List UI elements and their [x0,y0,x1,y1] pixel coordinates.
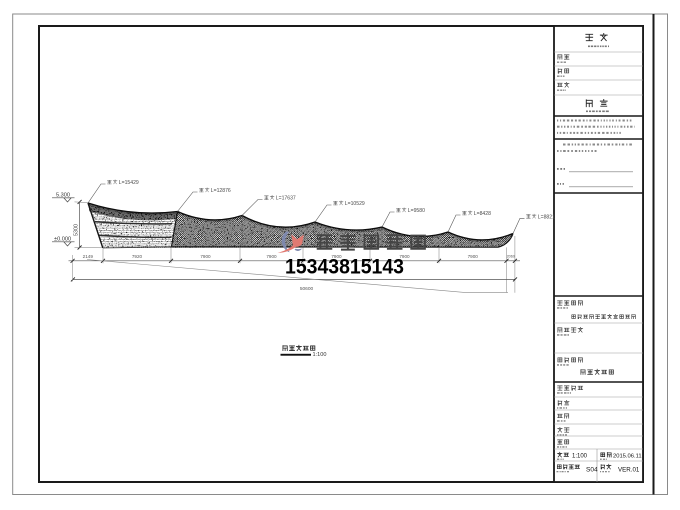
svg-text:7920: 7920 [132,254,143,259]
svg-text:7900: 7900 [266,254,277,259]
svg-text:15343815143: 15343815143 [285,255,404,279]
svg-text:L=8821: L=8821 [538,215,555,221]
svg-text:VER.01: VER.01 [618,467,640,474]
svg-text:5300: 5300 [74,224,80,236]
svg-text:L=17637: L=17637 [276,196,296,202]
svg-text:2149: 2149 [83,254,94,259]
svg-text:7900: 7900 [200,254,211,259]
svg-text:1:100: 1:100 [313,352,327,358]
svg-text:L=8428: L=8428 [474,211,491,217]
svg-text:2015.06.11: 2015.06.11 [613,454,642,460]
svg-text:7900: 7900 [468,254,479,259]
svg-text:L=15429: L=15429 [119,180,139,186]
svg-text:1:100: 1:100 [572,454,588,460]
svg-text:L=9580: L=9580 [408,208,425,214]
svg-text:50600: 50600 [300,286,314,292]
svg-text:S04: S04 [586,467,598,474]
svg-text:L=12876: L=12876 [211,188,231,194]
svg-text:L=10529: L=10529 [345,201,365,207]
svg-text:2069: 2069 [507,255,515,259]
